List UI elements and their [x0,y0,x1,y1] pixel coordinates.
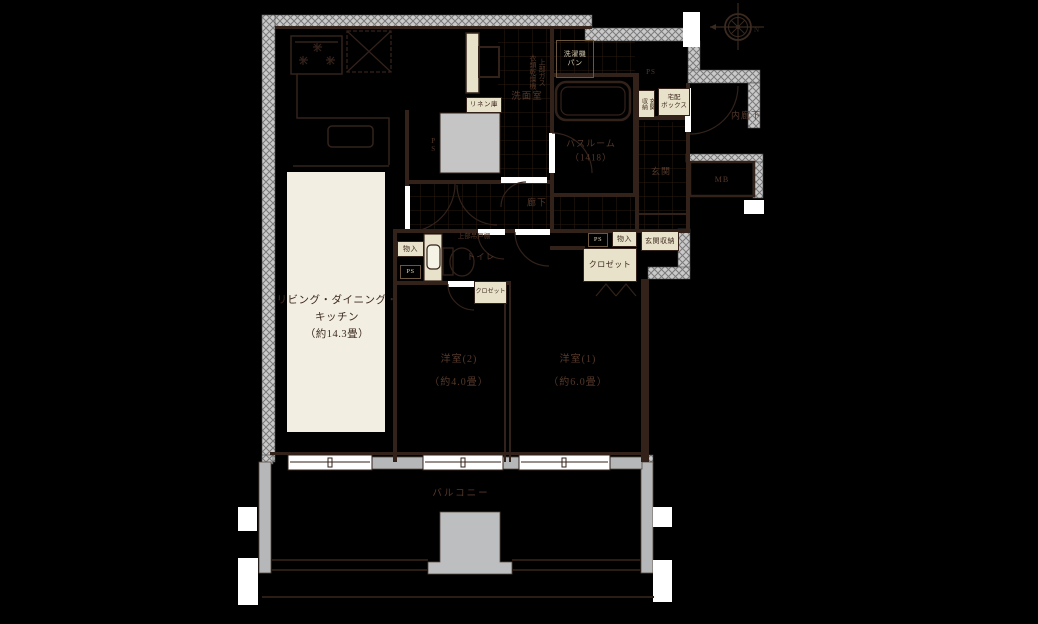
meter-box-label: MB [715,174,729,186]
washer-pan-box: 洗濯機 パン [556,40,594,78]
room-label-washroom: 洗面室 [511,90,543,104]
sink [328,126,373,147]
room-label-entrance: 玄関 [651,165,671,179]
fridge-icon [347,31,391,72]
ps-label-left: PS [428,137,439,153]
room-label-inner-corridor: 内廊下 [731,109,761,123]
compass-north-label: N [754,26,759,34]
bathtub-icon [556,82,630,120]
gas-dryer-label: 上部ガス 衣類乾燥機 [528,55,546,90]
stove-icon [291,36,342,74]
room-label-bedroom2: 洋室(2) （約4.0畳） [429,348,489,394]
compass-icon: N [710,3,764,50]
room-label-toilet: トイレ [467,251,496,264]
vanity [466,33,499,93]
storage-box-left: 物入 [397,241,424,257]
ps-box-mid: PS [400,265,421,279]
linen-closet-box: リネン庫 [466,97,502,113]
room-label-balcony: バルコニー [432,487,489,501]
room-label-ldk: リビング・ダイニング・ キッチン （約14.3畳） [277,293,398,343]
closet-fold-marks [596,284,636,296]
delivery-box: 宅配 ボックス [658,88,690,116]
room-label-bedroom1: 洋室(1) （約6.0畳） [548,348,608,394]
entrance-storage-box-top: 玄関 収納 [638,90,655,118]
closet-box-bedroom1: クロゼット [583,248,637,282]
entrance-storage-box-right: 玄関収納 [641,231,679,251]
floorplan: N リビング・ダイニング・ キッチン （約14.3畳） 洋室(2) （約4.0畳… [0,0,1038,624]
storage-box-right: 物入 [612,231,637,247]
upper-cabinet-label: 上部吊戸棚 [458,232,491,242]
ps-label-top: PS [646,67,656,78]
room-label-hallway: 廊下 [527,196,547,210]
closet-box-bedroom2: クロゼット [474,281,507,304]
washer-icon [424,234,442,281]
ps-box-right: PS [588,233,608,247]
kitchen-counter [293,74,389,166]
balcony-pedestal [428,512,512,574]
room-label-bathroom: バスルーム （1418） [566,138,616,165]
window-strips [288,455,610,470]
